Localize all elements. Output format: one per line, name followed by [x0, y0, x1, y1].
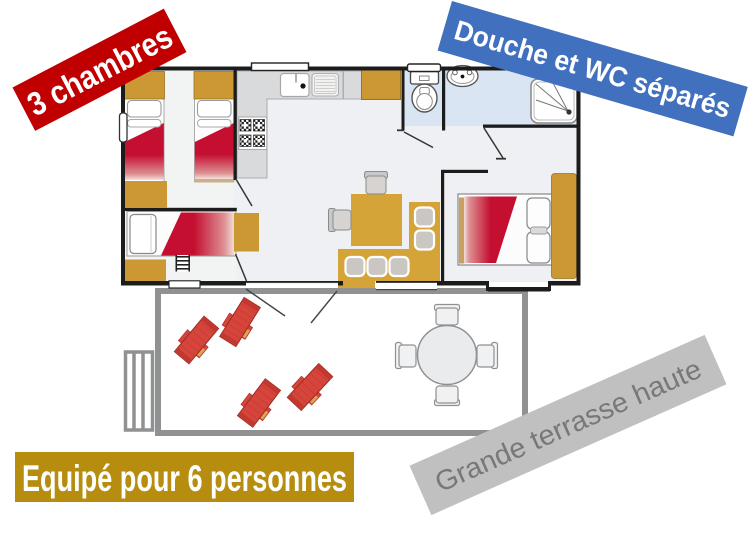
- svg-text:Equipé pour 6 personnes: Equipé pour 6 personnes: [22, 458, 347, 499]
